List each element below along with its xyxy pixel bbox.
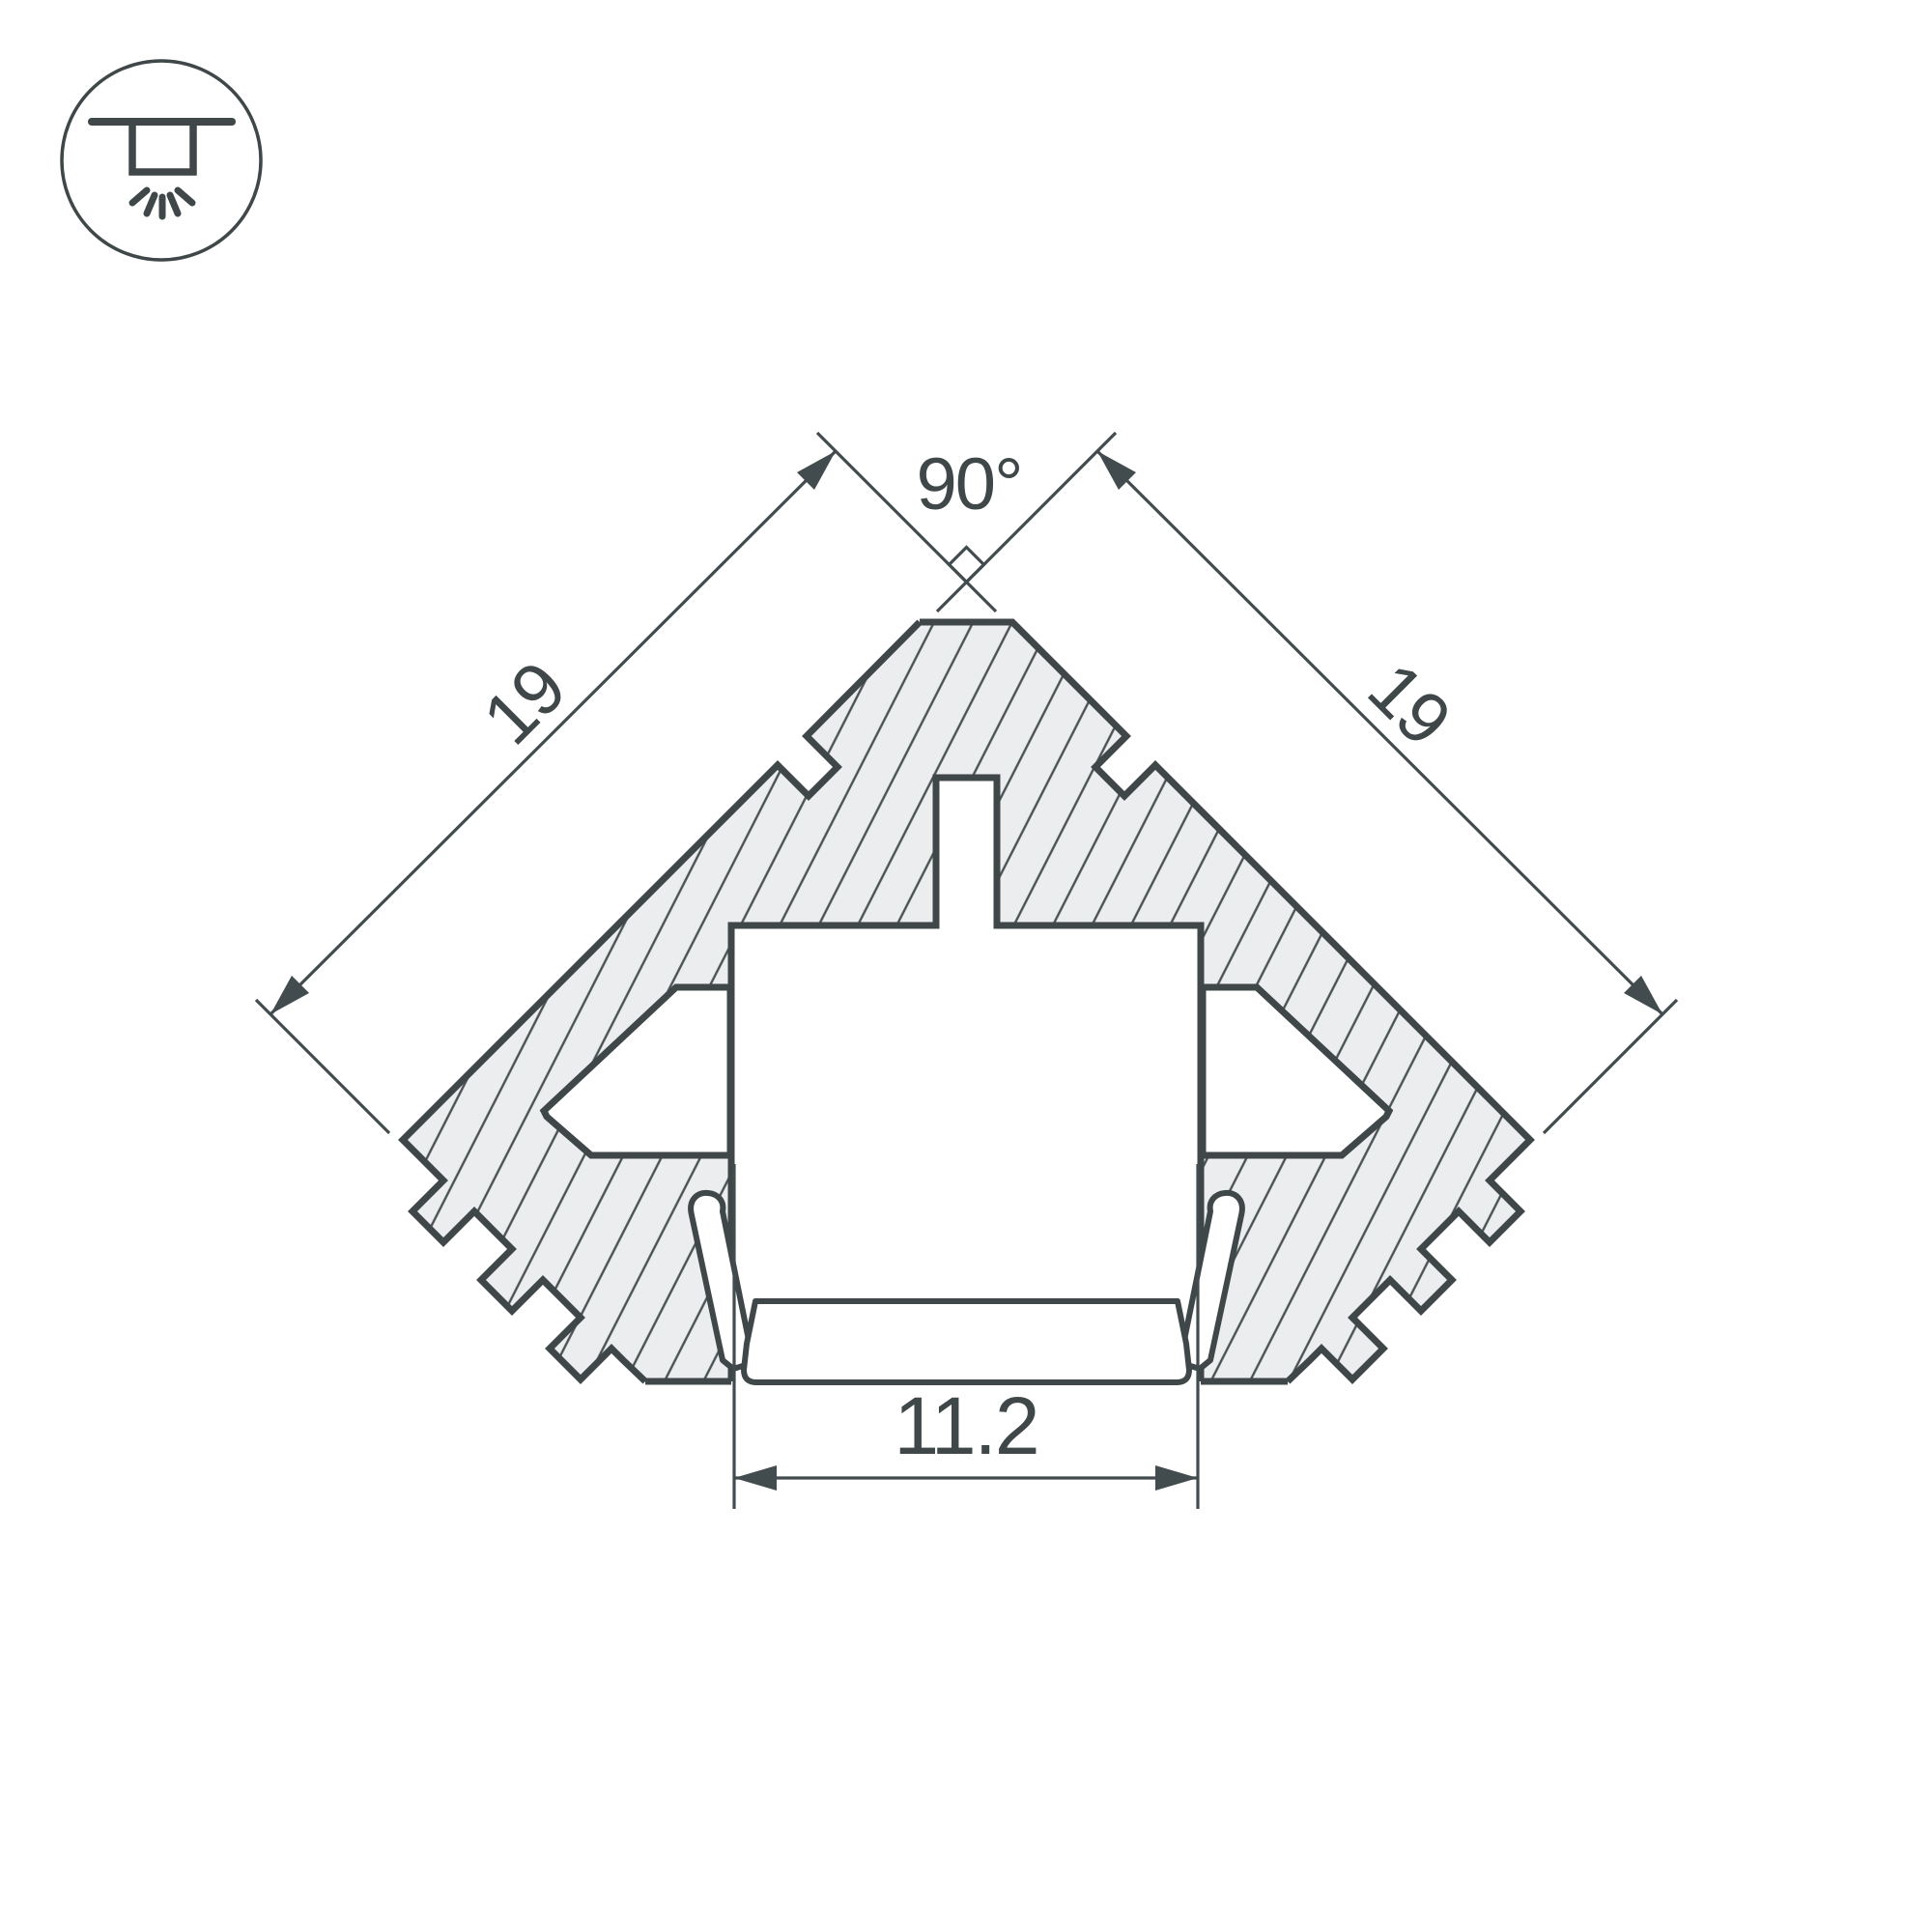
left-side-label: 19 [468, 647, 581, 760]
technical-drawing-page: 90° 19 19 11.2 [0, 0, 1932, 1932]
opening-width-label: 11.2 [894, 1380, 1037, 1471]
icon-fixture-box [132, 118, 193, 172]
angle-label: 90° [917, 443, 1022, 526]
arrowhead [1155, 1465, 1198, 1491]
recessed-ceiling-light-icon [62, 61, 261, 260]
diffuser-cover-plate [744, 1301, 1189, 1382]
profile-cross-section-drawing: 90° 19 19 11.2 [0, 0, 1932, 1932]
right-side-label: 19 [1352, 647, 1465, 760]
arrowhead [734, 1465, 777, 1491]
extension-line-bottom-right [1544, 1000, 1677, 1133]
angle-dimension: 90° [817, 433, 1116, 611]
icon-light-rays [132, 190, 192, 216]
extension-line-bottom-left [256, 1000, 389, 1133]
icon-circle [62, 61, 261, 260]
profile-body-hatch [403, 622, 1530, 1381]
right-angle-marker [950, 548, 984, 582]
